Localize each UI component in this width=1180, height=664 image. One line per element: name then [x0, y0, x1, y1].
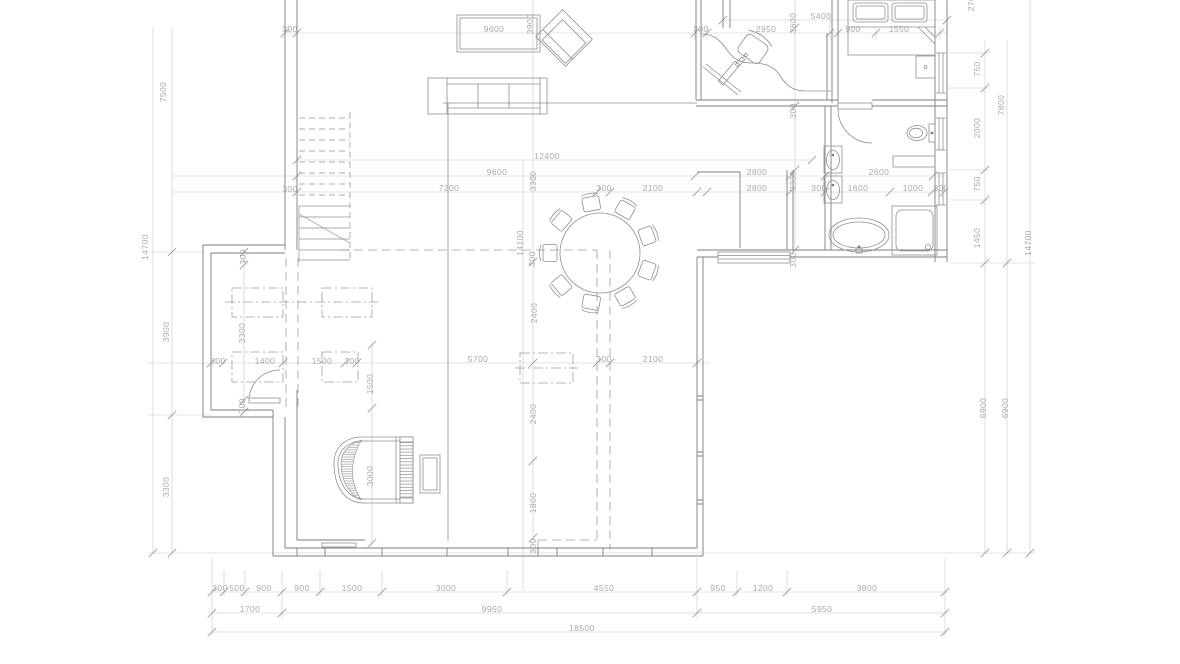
dim-label: 300: [238, 249, 248, 264]
dim-label: 900: [294, 583, 309, 593]
dim-label: 1400: [255, 356, 276, 366]
dim-label: 500: [229, 583, 244, 593]
dim-label: 2800: [747, 183, 768, 193]
dim-label: 5950: [812, 604, 833, 614]
floor-plan-canvas: 300 9600 300 2950 5400 900 1550 12400 96…: [0, 0, 1180, 664]
dim-label: 1500: [312, 356, 333, 366]
dim-label: 7500: [158, 82, 168, 103]
desk-accessories: [703, 53, 748, 95]
dim-label: 1500: [342, 583, 363, 593]
bathroom-shelf: [893, 156, 935, 167]
dim-label: 5400: [811, 11, 832, 21]
dim-label: 5700: [468, 354, 489, 364]
dining-chairs: [540, 192, 660, 314]
bathroom-door: [838, 103, 872, 143]
dim-label: 18500: [569, 623, 595, 633]
dim-label: 3800: [857, 583, 878, 593]
bathtub: [829, 218, 889, 253]
dim-label: 1550: [889, 24, 910, 34]
dim-label: 12400: [534, 151, 560, 161]
toilet: [907, 124, 935, 142]
dim-label: 300: [237, 398, 247, 413]
dim-label: 7200: [439, 183, 460, 193]
dim-label: 1200: [753, 583, 774, 593]
dim-label: 3300: [788, 171, 798, 192]
dim-label: 3300: [528, 171, 538, 192]
dim-label: 3300: [161, 477, 171, 498]
dim-label: 1700: [240, 604, 261, 614]
dim-label: 14700: [140, 234, 150, 260]
dim-label: 9600: [484, 24, 505, 34]
dim-label: 1500: [365, 374, 375, 395]
dim-label: 300: [596, 354, 611, 364]
dim-label: 1600: [848, 183, 869, 193]
dim-label: 1000: [903, 183, 924, 193]
window-seat: [718, 252, 790, 263]
dim-label: 2950: [756, 24, 777, 34]
dim-label: 300: [788, 252, 798, 267]
dim-label: 14100: [515, 230, 525, 256]
dim-label: 9950: [482, 604, 503, 614]
dim-label: 300: [282, 184, 297, 194]
dim-label: 2700: [966, 0, 976, 11]
stairs: [299, 112, 350, 262]
dim-label: 300: [282, 24, 297, 34]
dim-label: 300: [811, 183, 826, 193]
dim-label: 14700: [1023, 230, 1033, 256]
dimension-labels: 300 9600 300 2950 5400 900 1550 12400 96…: [140, 0, 1033, 633]
dim-label: 300: [210, 356, 225, 366]
dim-label: 300: [933, 183, 948, 193]
floor-plan-viewport: 300 9600 300 2950 5400 900 1550 12400 96…: [0, 0, 1180, 664]
armchair: [536, 10, 593, 67]
dim-label: 4550: [594, 583, 615, 593]
dim-label: 3900: [525, 14, 535, 35]
dim-label: 2600: [869, 167, 890, 177]
dim-label: 3900: [161, 322, 171, 343]
dim-label: 300: [527, 251, 537, 266]
dim-label: 950: [710, 583, 725, 593]
dim-label: 3300: [237, 323, 247, 344]
sofa: [428, 78, 547, 114]
dim-label: 900: [256, 583, 271, 593]
dim-label: 1450: [972, 228, 982, 249]
dim-label: 300: [788, 103, 798, 118]
dim-label: 3600: [788, 13, 798, 34]
wing-door: [249, 370, 280, 403]
dim-label: 2000: [972, 118, 982, 139]
walls: [203, 0, 947, 556]
dim-label: 300: [528, 538, 538, 553]
column-markers: [225, 288, 578, 383]
dim-label: 2100: [643, 354, 664, 364]
dim-label: 2800: [747, 167, 768, 177]
dim-label: 2100: [643, 183, 664, 193]
piano-bench: [420, 455, 440, 493]
dimension-ticks: [149, 16, 1034, 636]
dim-label: 7800: [996, 95, 1006, 116]
dim-label: 2400: [528, 404, 538, 425]
sink: [824, 146, 842, 173]
dimension-lines: [148, 0, 1035, 636]
shower: [892, 206, 937, 255]
dim-label: 6900: [1000, 398, 1010, 419]
dim-label: 300: [344, 356, 359, 366]
dim-label: 300: [212, 583, 227, 593]
dim-label: 750: [972, 176, 982, 191]
dim-label: 900: [845, 24, 860, 34]
dim-label: 2400: [529, 303, 539, 324]
dim-label: 9600: [487, 167, 508, 177]
dim-label: 300: [693, 24, 708, 34]
dim-label: 3000: [365, 466, 375, 487]
dim-label: 1800: [528, 493, 538, 514]
dining-table: [560, 213, 640, 293]
dim-label: 6900: [978, 398, 988, 419]
dim-label: 300: [596, 183, 611, 193]
dim-label: 3000: [436, 583, 457, 593]
nightstand: [916, 56, 935, 78]
dim-label: 750: [972, 61, 982, 76]
